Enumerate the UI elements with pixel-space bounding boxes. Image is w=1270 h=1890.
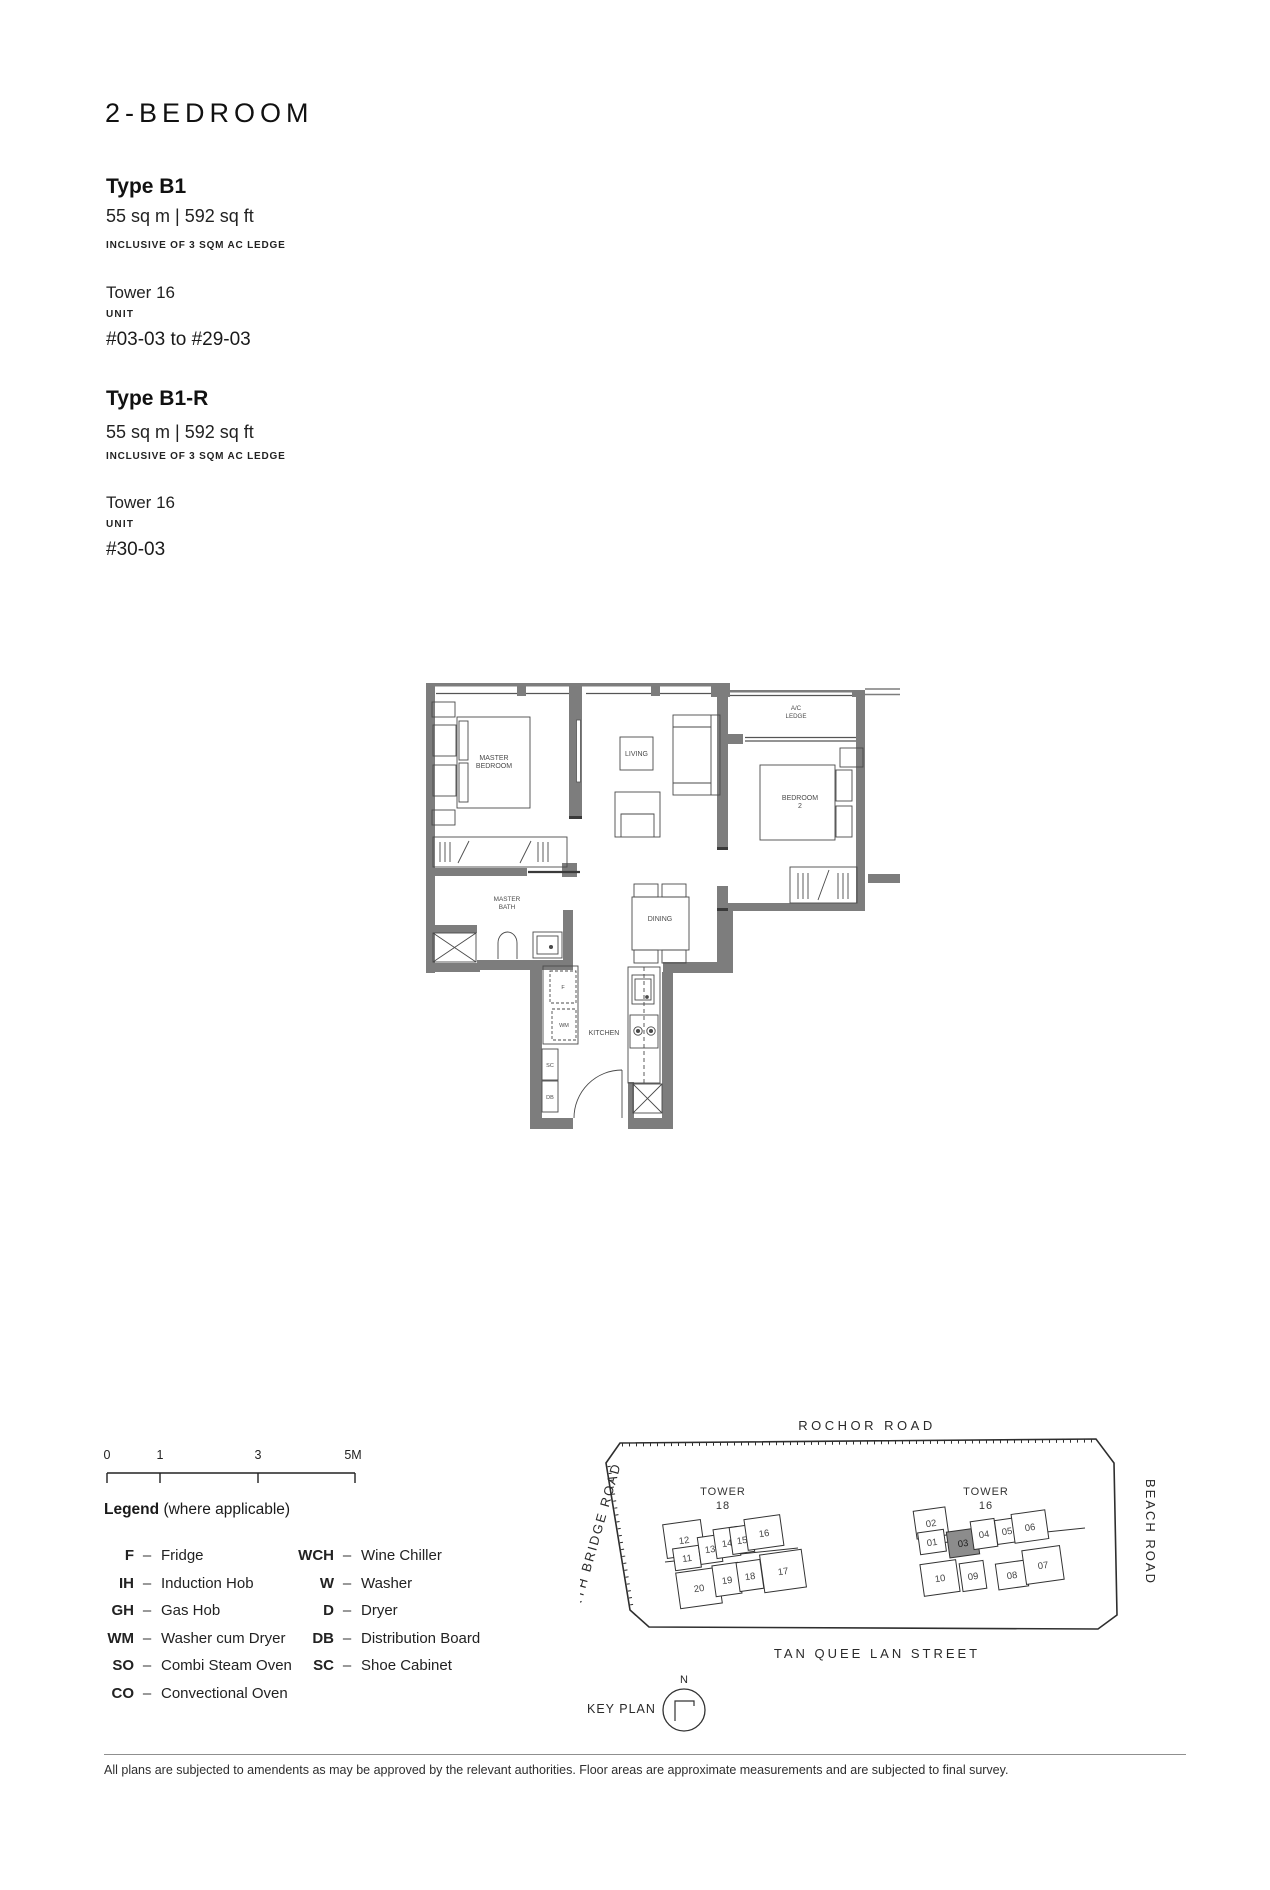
unit-12: 12 bbox=[678, 1535, 690, 1547]
scale-5m: 5M bbox=[344, 1448, 361, 1462]
mb-pillow-2 bbox=[459, 763, 468, 802]
north-label: N bbox=[680, 1674, 688, 1686]
scale-bar-line bbox=[107, 1473, 355, 1483]
floor-plan: MASTER BEDROOM LIVING A/C LEDGE BEDROOM … bbox=[400, 670, 900, 1140]
page-title: 2-BEDROOM bbox=[105, 100, 314, 127]
mb-nightstand-1 bbox=[433, 725, 456, 756]
dining-chair bbox=[634, 884, 658, 897]
legend-row: F–Fridge bbox=[104, 1548, 292, 1563]
type-b1-tower: Tower 16 bbox=[106, 284, 175, 301]
type-b1r-unit-label: UNIT bbox=[106, 520, 134, 530]
brochure-page: 2-BEDROOM Type B1 55 sq m | 592 sq ft IN… bbox=[0, 0, 1270, 1890]
unit-02: 02 bbox=[925, 1518, 937, 1530]
scale-bar: 0 1 3 5M bbox=[102, 1446, 372, 1492]
legend: Legend (where applicable) F–Fridge IH–In… bbox=[104, 1502, 504, 1742]
compass-needle bbox=[675, 1701, 694, 1721]
legend-row: GH–Gas Hob bbox=[104, 1603, 292, 1618]
unit-01: 01 bbox=[926, 1537, 938, 1549]
type-b1r-name: Type B1-R bbox=[106, 388, 208, 409]
kitchen-label: KITCHEN bbox=[589, 1030, 620, 1037]
fridge-label: F bbox=[561, 985, 565, 991]
unit-08: 08 bbox=[1006, 1570, 1018, 1582]
svg-text:2: 2 bbox=[798, 803, 802, 810]
master-bedroom-label: MASTER bbox=[479, 755, 508, 762]
legend-row: DB–Distribution Board bbox=[298, 1631, 480, 1646]
legend-column-1: F–Fridge IH–Induction Hob GH–Gas Hob WM–… bbox=[104, 1548, 292, 1713]
road-rochor: ROCHOR ROAD bbox=[798, 1418, 935, 1433]
unit-19: 19 bbox=[721, 1575, 733, 1587]
type-b1r-units: #30-03 bbox=[106, 540, 165, 559]
entrance-door bbox=[574, 1070, 622, 1118]
road-tan-quee-lan: TAN QUEE LAN STREET bbox=[774, 1646, 980, 1661]
scale-3: 3 bbox=[255, 1448, 262, 1462]
floor-plan-walls bbox=[426, 683, 900, 1129]
road-beach: BEACH ROAD bbox=[1143, 1479, 1158, 1585]
unit-10: 10 bbox=[934, 1573, 946, 1585]
dining-chair bbox=[662, 884, 686, 897]
unit-03-highlighted: 03 bbox=[957, 1538, 969, 1550]
tower16-label: TOWER bbox=[963, 1486, 1009, 1498]
mb-nightstand-2 bbox=[433, 765, 456, 796]
type-b1r-area: 55 sq m | 592 sq ft bbox=[106, 423, 254, 441]
unit-13: 13 bbox=[704, 1544, 716, 1556]
type-b1-inclusive: INCLUSIVE OF 3 SQM AC LEDGE bbox=[106, 241, 286, 251]
washer-label: WM bbox=[559, 1023, 569, 1029]
type-b1-name: Type B1 bbox=[106, 176, 186, 197]
type-b1r-inclusive: INCLUSIVE OF 3 SQM AC LEDGE bbox=[106, 452, 286, 462]
distribution-board-label: DB bbox=[546, 1095, 554, 1101]
unit-05: 05 bbox=[1001, 1526, 1013, 1538]
legend-row: WM–Washer cum Dryer bbox=[104, 1631, 292, 1646]
key-plan-label: KEY PLAN bbox=[587, 1702, 656, 1716]
legend-row: D–Dryer bbox=[298, 1603, 480, 1618]
legend-row: WCH–Wine Chiller bbox=[298, 1548, 480, 1563]
living-label: LIVING bbox=[625, 751, 648, 758]
svg-text:16: 16 bbox=[979, 1500, 993, 1512]
tower16-units: 02 01 03 04 05 06 10 09 08 07 bbox=[913, 1507, 1064, 1596]
toilet bbox=[498, 932, 517, 959]
dining-chair bbox=[662, 950, 686, 963]
unit-04: 04 bbox=[978, 1529, 990, 1541]
key-plan: ROCHOR ROAD NORTH BRIDGE ROAD BEACH ROAD… bbox=[580, 1410, 1220, 1740]
mb-corner-cabinet bbox=[432, 702, 455, 717]
road-north-bridge: NORTH BRIDGE ROAD bbox=[580, 1461, 624, 1633]
type-b1-units: #03-03 to #29-03 bbox=[106, 330, 251, 349]
compass-icon bbox=[663, 1689, 705, 1731]
shoe-cabinet-label: SC bbox=[546, 1063, 554, 1069]
tower18-label: TOWER bbox=[700, 1486, 746, 1498]
svg-text:LEDGE: LEDGE bbox=[786, 713, 807, 720]
unit-07: 07 bbox=[1037, 1560, 1049, 1572]
svg-text:18: 18 bbox=[716, 1500, 730, 1512]
living-side-window bbox=[577, 720, 581, 782]
type-b1-area: 55 sq m | 592 sq ft bbox=[106, 207, 254, 225]
dining-chair bbox=[634, 950, 658, 963]
ac-ledge-label: A/C bbox=[791, 705, 802, 712]
mb-corner-cabinet-2 bbox=[432, 810, 455, 825]
legend-subtitle: (where applicable) bbox=[163, 1501, 290, 1518]
unit-11: 11 bbox=[681, 1553, 692, 1565]
bed2-pillow-1 bbox=[836, 770, 852, 801]
dining-table bbox=[632, 897, 689, 950]
scale-0: 0 bbox=[104, 1448, 111, 1462]
kitchen-cabinet-column bbox=[543, 966, 578, 1044]
scale-1: 1 bbox=[157, 1448, 164, 1462]
legend-row: IH–Induction Hob bbox=[104, 1576, 292, 1591]
svg-text:BEDROOM: BEDROOM bbox=[476, 763, 512, 770]
footer-divider bbox=[104, 1754, 1186, 1755]
legend-row: CO–Convectional Oven bbox=[104, 1686, 292, 1701]
legend-row: SC–Shoe Cabinet bbox=[298, 1658, 480, 1673]
legend-title-text: Legend bbox=[104, 1501, 159, 1518]
bedroom2-label: BEDROOM bbox=[782, 795, 818, 802]
neighbor-wall-lines bbox=[865, 689, 900, 695]
legend-column-2: WCH–Wine Chiller W–Washer D–Dryer DB–Dis… bbox=[298, 1548, 480, 1686]
armchair bbox=[615, 792, 660, 837]
mb-wardrobe bbox=[433, 837, 567, 867]
road-hatch-left bbox=[609, 1466, 632, 1607]
unit-20: 20 bbox=[693, 1583, 705, 1595]
bed2-pillow-2 bbox=[836, 806, 852, 837]
unit-17: 17 bbox=[777, 1566, 789, 1578]
master-bath-label: MASTER bbox=[494, 896, 521, 903]
footer-disclaimer: All plans are subjected to amendents as … bbox=[104, 1764, 1008, 1777]
legend-row: W–Washer bbox=[298, 1576, 480, 1591]
legend-row: SO–Combi Steam Oven bbox=[104, 1658, 292, 1673]
unit-18: 18 bbox=[744, 1571, 756, 1583]
unit-06: 06 bbox=[1024, 1522, 1036, 1534]
type-b1r-tower: Tower 16 bbox=[106, 494, 175, 511]
legend-title: Legend (where applicable) bbox=[104, 1502, 504, 1518]
unit-09: 09 bbox=[967, 1571, 979, 1583]
svg-text:BATH: BATH bbox=[499, 904, 516, 911]
unit-16: 16 bbox=[758, 1528, 770, 1540]
mb-pillow-1 bbox=[459, 721, 468, 760]
dining-label: DINING bbox=[648, 916, 673, 923]
type-b1-unit-label: UNIT bbox=[106, 310, 134, 320]
tower18-units: 12 11 13 14 15 16 20 19 18 17 bbox=[663, 1515, 807, 1609]
